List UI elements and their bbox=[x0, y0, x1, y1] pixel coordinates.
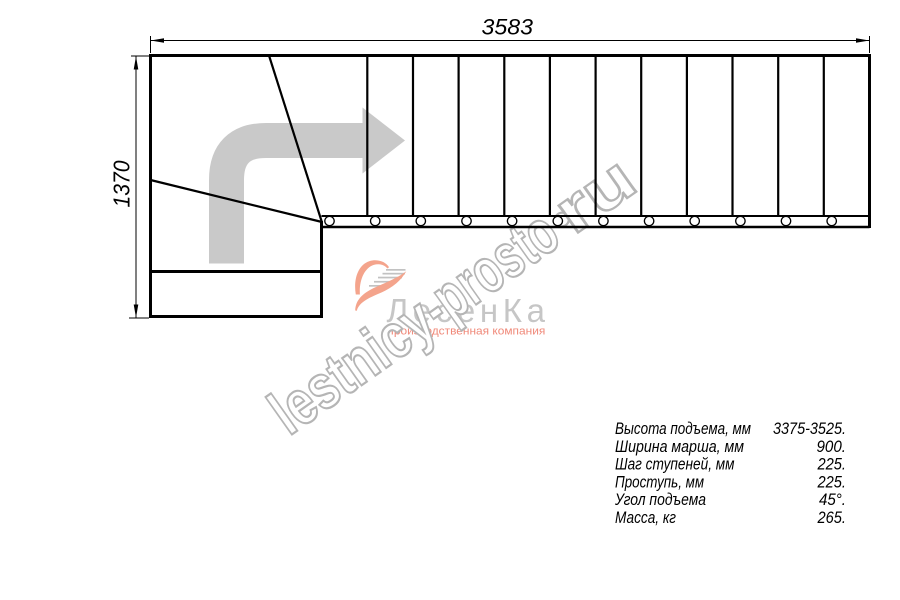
svg-text:Проступь, мм: Проступь, мм bbox=[615, 472, 704, 491]
svg-text:Масса, кг: Масса, кг bbox=[615, 508, 676, 527]
svg-text:45°.: 45°. bbox=[819, 490, 846, 509]
svg-text:3375-3525.: 3375-3525. bbox=[773, 419, 846, 438]
svg-text:265.: 265. bbox=[817, 508, 846, 527]
svg-text:1370: 1370 bbox=[109, 160, 135, 207]
svg-text:Высота подъема, мм: Высота подъема, мм bbox=[615, 419, 751, 438]
svg-text:225.: 225. bbox=[817, 472, 846, 491]
svg-text:Угол подъема: Угол подъема bbox=[614, 490, 706, 509]
svg-text:900.: 900. bbox=[817, 437, 847, 456]
svg-text:225.: 225. bbox=[817, 455, 846, 474]
svg-text:3583: 3583 bbox=[482, 14, 534, 39]
svg-text:Шаг ступеней, мм: Шаг ступеней, мм bbox=[615, 455, 735, 474]
svg-text:Ширина марша, мм: Ширина марша, мм bbox=[615, 437, 744, 456]
